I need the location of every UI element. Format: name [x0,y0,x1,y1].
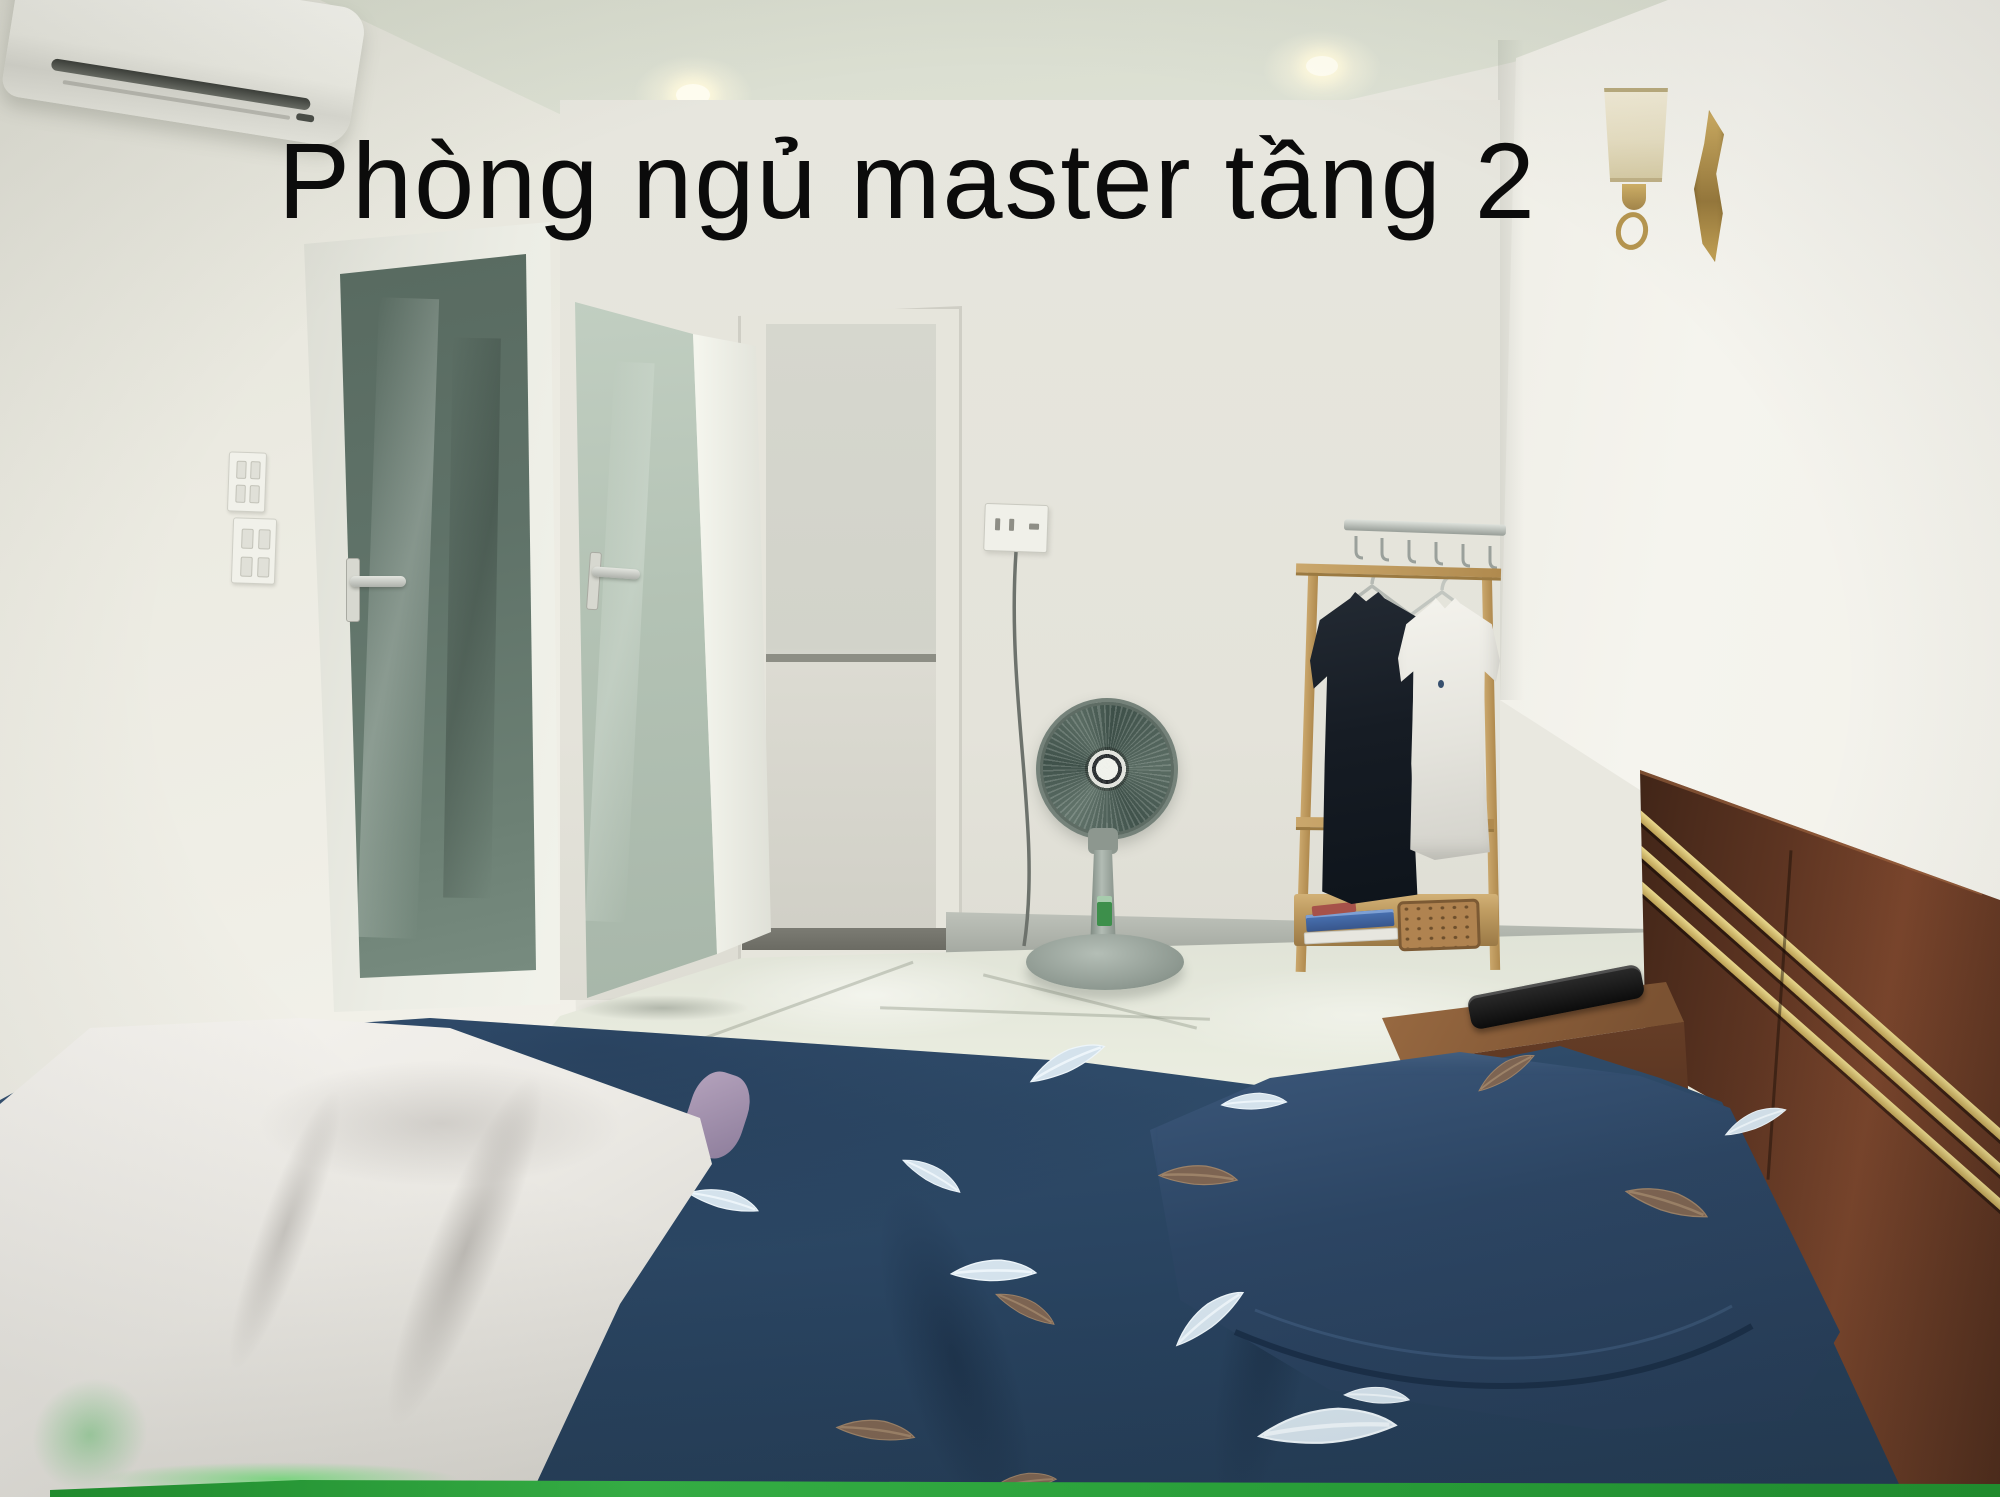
pillow-seam [1235,1306,1752,1386]
bedroom-photo: Phòng ngủ master tầng 2 [0,0,2000,1497]
caption-overlay: Phòng ngủ master tầng 2 [278,118,1778,248]
